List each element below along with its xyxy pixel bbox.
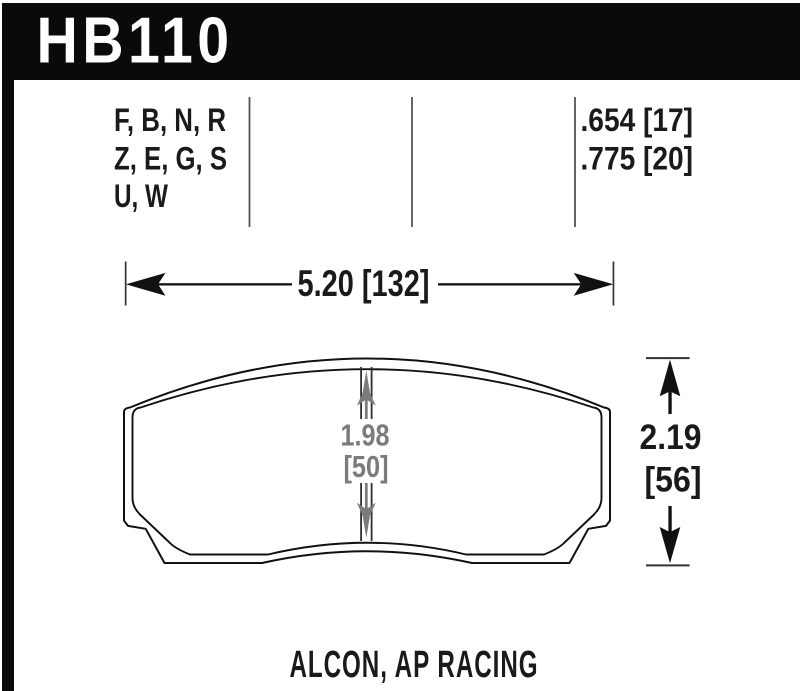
svg-text:[56]: [56] bbox=[645, 460, 702, 500]
svg-text:[50]: [50] bbox=[344, 449, 389, 484]
svg-text:U, W: U, W bbox=[114, 178, 168, 214]
svg-text:F, B, N, R: F, B, N, R bbox=[114, 102, 226, 138]
svg-text:5.20 [132]: 5.20 [132] bbox=[298, 263, 430, 304]
svg-text:.654 [17]: .654 [17] bbox=[581, 102, 694, 138]
svg-text:2.19: 2.19 bbox=[640, 417, 702, 457]
svg-text:ALCON, AP RACING: ALCON, AP RACING bbox=[290, 644, 539, 686]
svg-text:HB110: HB110 bbox=[37, 3, 234, 76]
svg-text:1.98: 1.98 bbox=[341, 418, 390, 453]
svg-text:.775 [20]: .775 [20] bbox=[581, 140, 694, 176]
svg-text:Z, E, G, S: Z, E, G, S bbox=[114, 140, 227, 176]
